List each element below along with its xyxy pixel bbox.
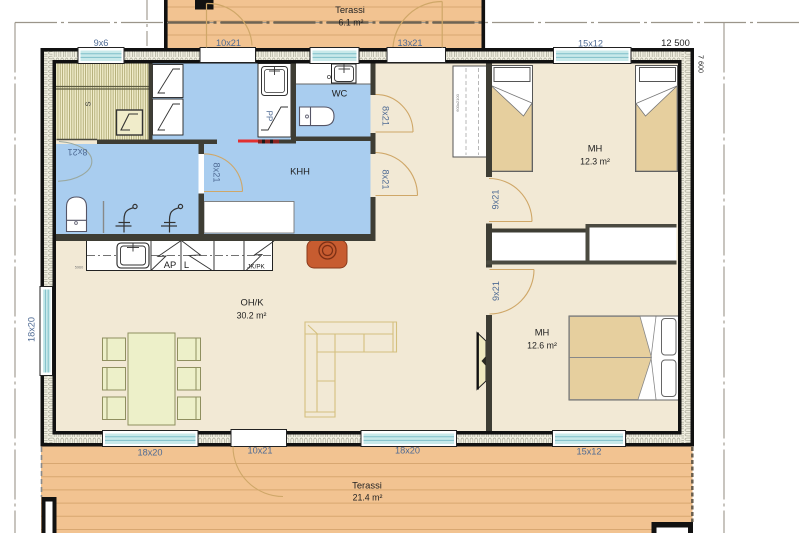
svg-text:MH: MH: [588, 143, 603, 154]
svg-text:7 600: 7 600: [697, 55, 706, 73]
svg-text:9x21: 9x21: [491, 190, 501, 210]
svg-text:600x2100: 600x2100: [455, 93, 460, 111]
svg-text:Terassi: Terassi: [352, 480, 382, 491]
svg-text:12.3 m²: 12.3 m²: [580, 157, 610, 167]
svg-text:WC: WC: [332, 88, 348, 99]
svg-text:JK/PK: JK/PK: [247, 264, 265, 271]
svg-text:8x21: 8x21: [381, 170, 391, 190]
svg-text:L: L: [184, 259, 189, 270]
svg-text:5960: 5960: [75, 266, 83, 270]
svg-text:18x20: 18x20: [137, 448, 162, 458]
svg-text:6.1 m²: 6.1 m²: [339, 18, 364, 28]
svg-text:15x12: 15x12: [578, 39, 603, 49]
svg-text:10x21: 10x21: [247, 446, 272, 456]
svg-text:9x6: 9x6: [94, 38, 109, 48]
svg-text:OH/K: OH/K: [241, 297, 265, 308]
svg-text:8x21: 8x21: [381, 106, 391, 126]
svg-text:10x21: 10x21: [216, 38, 241, 48]
svg-text:9x21: 9x21: [491, 281, 501, 301]
svg-text:8x21: 8x21: [212, 163, 222, 183]
svg-text:13x21: 13x21: [397, 38, 422, 48]
svg-text:AP: AP: [164, 259, 177, 270]
svg-text:S: S: [84, 101, 93, 106]
svg-text:15x12: 15x12: [576, 447, 601, 457]
svg-text:PP: PP: [265, 111, 274, 122]
svg-text:12 500: 12 500: [661, 37, 690, 48]
svg-text:18x20: 18x20: [27, 317, 37, 342]
svg-text:18x20: 18x20: [395, 446, 420, 456]
svg-text:Terassi: Terassi: [335, 4, 365, 15]
svg-text:8x21: 8x21: [68, 147, 88, 157]
svg-text:KHH: KHH: [290, 166, 310, 177]
svg-text:30.2 m²: 30.2 m²: [237, 311, 267, 321]
svg-text:MH: MH: [535, 327, 550, 338]
svg-text:12.6 m²: 12.6 m²: [527, 341, 557, 351]
svg-text:21.4 m²: 21.4 m²: [353, 493, 383, 503]
